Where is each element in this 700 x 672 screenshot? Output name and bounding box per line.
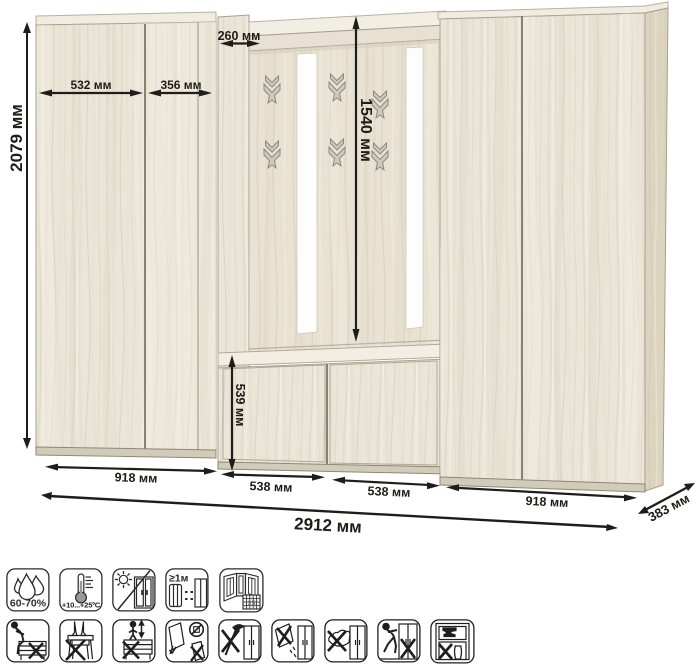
- svg-text:260 мм: 260 мм: [218, 29, 261, 43]
- svg-text:538 мм: 538 мм: [249, 479, 292, 495]
- svg-text:1540 мм: 1540 мм: [357, 98, 374, 162]
- svg-text:+10...+25ºC: +10...+25ºC: [62, 601, 101, 610]
- svg-text:2912 мм: 2912 мм: [294, 514, 363, 537]
- svg-text:356 мм: 356 мм: [160, 78, 201, 92]
- svg-text:918 мм: 918 мм: [525, 494, 569, 510]
- svg-text:≥1м: ≥1м: [169, 573, 189, 585]
- svg-text:538 мм: 538 мм: [367, 484, 410, 500]
- svg-text:60-70%: 60-70%: [10, 598, 47, 610]
- svg-text:532 мм: 532 мм: [70, 78, 111, 92]
- svg-text:539 мм: 539 мм: [233, 384, 247, 427]
- svg-text:25: 25: [248, 601, 256, 608]
- svg-text:2079 мм: 2079 мм: [7, 104, 26, 172]
- svg-text:918 мм: 918 мм: [114, 470, 157, 485]
